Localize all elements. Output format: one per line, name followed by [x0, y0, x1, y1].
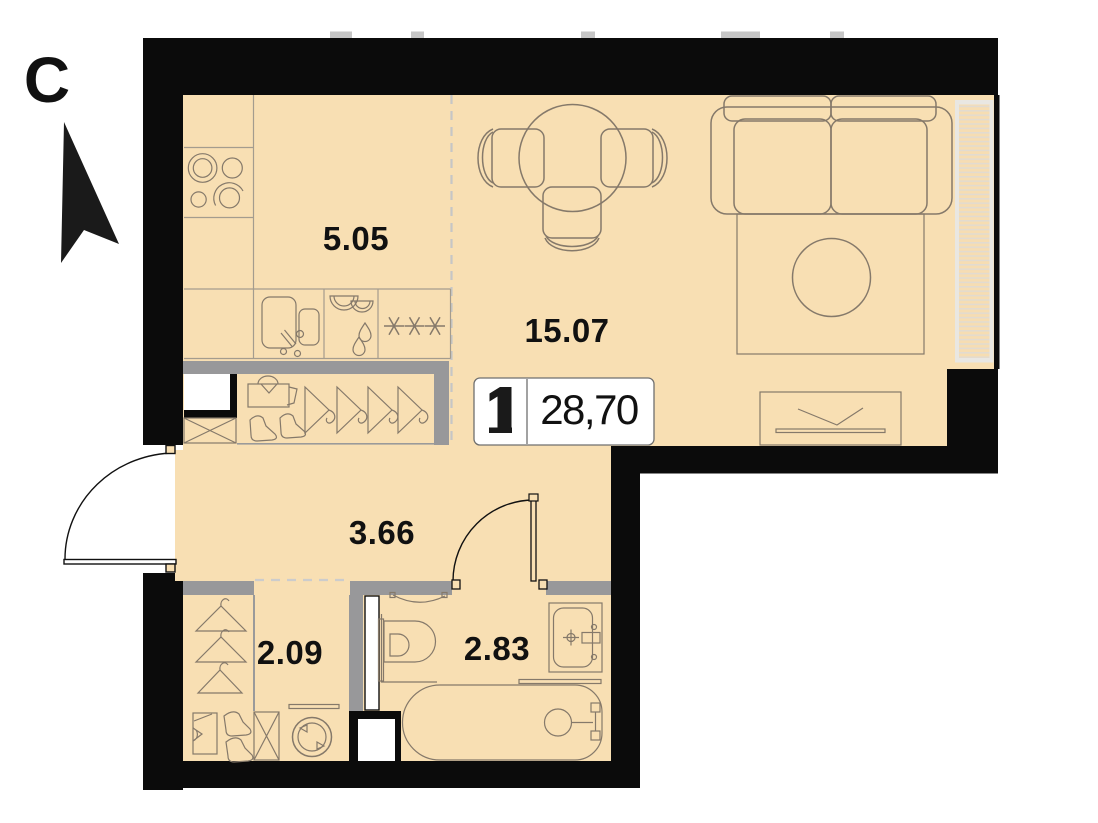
svg-text:С: С — [24, 44, 70, 116]
svg-text:2.09: 2.09 — [257, 634, 323, 671]
svg-text:28,70: 28,70 — [540, 386, 638, 433]
svg-text:15.07: 15.07 — [524, 312, 609, 349]
svg-text:3.66: 3.66 — [349, 514, 415, 551]
svg-text:2.83: 2.83 — [464, 630, 530, 667]
svg-text:5.05: 5.05 — [323, 220, 389, 257]
